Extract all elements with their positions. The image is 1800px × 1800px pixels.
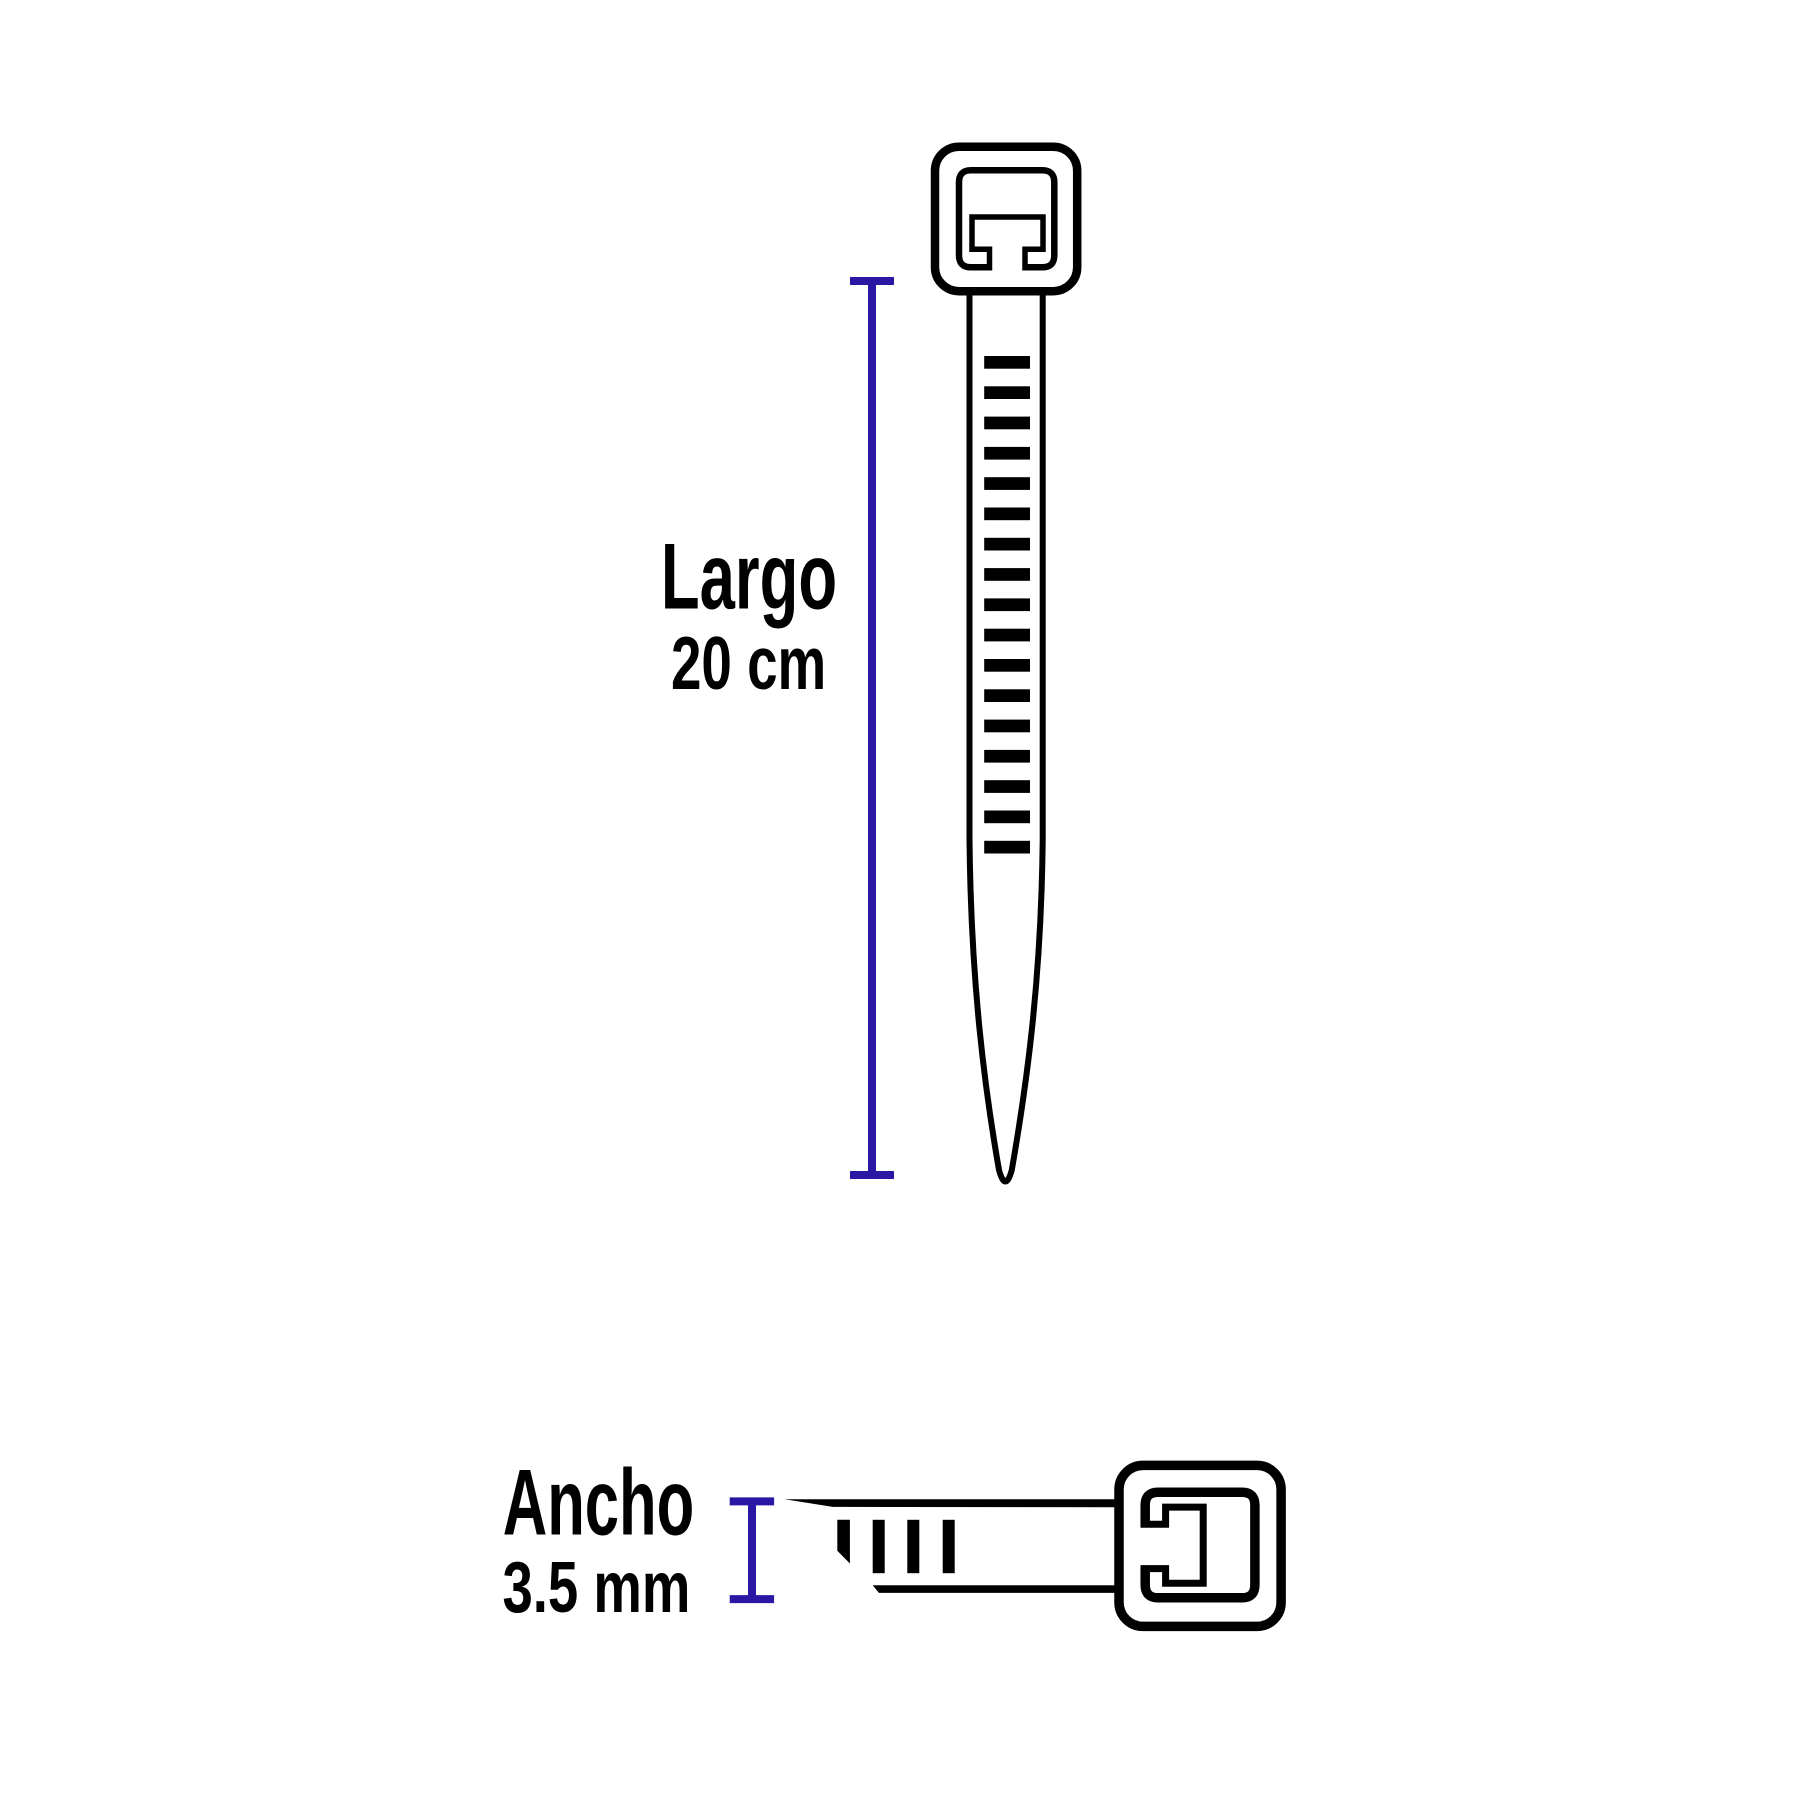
svg-text:Largo: Largo <box>661 523 837 628</box>
svg-text:3.5 mm: 3.5 mm <box>502 1547 690 1628</box>
svg-text:Ancho: Ancho <box>503 1450 694 1555</box>
svg-text:20 cm: 20 cm <box>671 622 826 705</box>
